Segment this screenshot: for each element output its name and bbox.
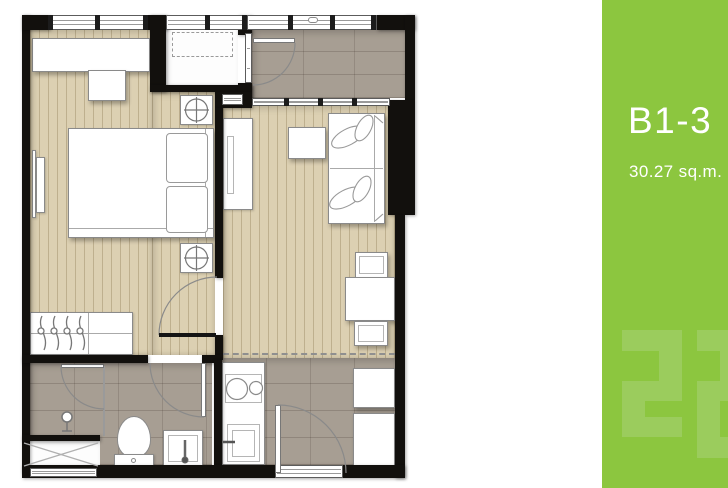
window-mullion	[330, 15, 335, 30]
toilet-bowl	[117, 416, 151, 458]
wall-right	[405, 15, 415, 100]
shower-door-leaf	[61, 364, 104, 368]
watermark-segment	[622, 381, 682, 401]
wall-shaft-top	[22, 435, 100, 441]
window-mullion	[242, 15, 247, 30]
wall-top	[22, 15, 50, 30]
wall-kitchen-left	[214, 360, 222, 465]
wall-mirror-panel	[36, 157, 45, 213]
entrance-door-leaf	[275, 405, 281, 473]
wall-right	[388, 100, 415, 215]
pillow	[166, 186, 208, 233]
tv-panel	[227, 136, 234, 194]
refrigerator	[353, 368, 395, 408]
wardrobe-divider	[88, 313, 89, 354]
watermark-segment	[697, 330, 728, 351]
window-mullion	[352, 98, 357, 106]
vanity-basin	[168, 435, 198, 462]
balcony-door-leaf	[253, 38, 295, 43]
floor-plan-page: B1-3 30.27 sq.m.	[0, 0, 728, 488]
wall-bedroom-living	[215, 108, 223, 278]
watermark-segment	[697, 437, 728, 458]
coffee-table	[288, 127, 326, 159]
dressing-stool	[88, 70, 126, 101]
ac-condenser-outline	[172, 32, 233, 57]
watermark-segment	[720, 351, 728, 383]
watermark-segment	[697, 381, 728, 401]
shaft-window	[30, 468, 97, 477]
wall-ac-ledge-bottom	[150, 85, 252, 92]
window-mullion	[48, 15, 53, 30]
built-in-closet	[32, 38, 150, 72]
unit-area-label: 30.27 sq.m.	[629, 162, 722, 182]
pillow	[166, 133, 208, 183]
dining-chair-seat	[358, 325, 384, 342]
dining-chair-seat	[359, 256, 384, 274]
window-mullion	[288, 15, 293, 30]
railing-handle	[308, 17, 318, 23]
ceiling-light-box	[180, 95, 213, 125]
wall-right	[395, 215, 405, 478]
wall-left	[22, 15, 30, 473]
unit-label: B1-3	[628, 100, 712, 142]
window-mullion	[95, 15, 100, 30]
wardrobe-rail	[31, 333, 132, 334]
floor-plan	[0, 0, 620, 488]
toilet-flush-button	[131, 458, 136, 463]
dining-table	[345, 277, 395, 321]
washing-machine	[353, 413, 395, 466]
entrance-threshold	[275, 465, 343, 478]
window-mullion	[284, 98, 289, 106]
window-mullion	[371, 15, 376, 30]
watermark-segment	[622, 330, 682, 351]
window-mullion	[318, 98, 323, 106]
kitchen-boundary-dashed-line	[223, 353, 395, 355]
window-mullion	[143, 15, 148, 30]
wall-ac-ledge-left	[150, 15, 166, 92]
void-shaft	[22, 441, 100, 468]
stove-top	[225, 374, 262, 403]
unit-info-panel: B1-3 30.27 sq.m.	[602, 0, 728, 488]
shower-glass-partition	[103, 366, 105, 436]
window-mullion	[205, 15, 210, 30]
watermark-segment	[622, 417, 682, 437]
ceiling-light-box	[180, 243, 213, 273]
sofa-seat-divider	[330, 168, 383, 169]
service-niche	[222, 94, 243, 105]
balcony-door-jamb	[245, 33, 252, 83]
kitchen-sink-basin	[232, 430, 255, 457]
wall-bathroom-top	[22, 355, 148, 363]
bathroom-door-leaf	[201, 363, 206, 417]
watermark-segment	[659, 351, 682, 383]
